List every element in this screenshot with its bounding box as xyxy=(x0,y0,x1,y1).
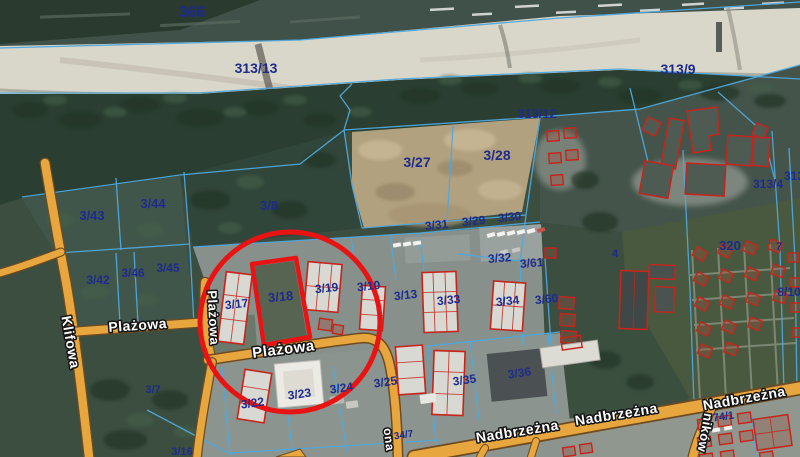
parcel-label: 3/32 xyxy=(487,250,512,266)
parcel-label: 320 xyxy=(719,238,741,253)
parcel-label: 4 xyxy=(612,248,619,260)
parcel-label: 366 xyxy=(179,4,206,21)
parcel-label: 3/44 xyxy=(140,196,166,211)
map-canvas[interactable]: PlażowaPlażowaPlażowaKlifowaNadbrzeżnaNa… xyxy=(0,0,800,457)
parcel-label: 3/13 xyxy=(393,287,418,303)
parcel-label: 3/8 xyxy=(260,198,278,213)
map-viewport[interactable]: PlażowaPlażowaPlażowaKlifowaNadbrzeżnaNa… xyxy=(0,0,800,457)
building xyxy=(655,287,675,313)
street-label: Plażowa xyxy=(205,290,223,346)
parcel-label: 313 xyxy=(784,169,800,183)
parcel-label: 3/45 xyxy=(156,261,180,275)
parcel-label: 3/31 xyxy=(424,217,449,233)
parcel-label: 3/34 xyxy=(495,293,520,309)
parcel-label: 8/10 xyxy=(777,285,800,299)
parcel-label: 3/17 xyxy=(224,296,249,312)
parcel-label: 3/60 xyxy=(534,291,559,307)
parcel-label: 3/28 xyxy=(483,147,510,163)
building-cabin xyxy=(318,318,332,331)
parcel-label: 313/12 xyxy=(517,106,557,121)
parcel-label: 3/42 xyxy=(86,273,110,287)
building xyxy=(649,265,675,280)
parcel-label: 3/18 xyxy=(267,288,294,305)
parcel-label: 3/16 xyxy=(171,446,192,457)
building-small xyxy=(545,248,556,258)
road-stub-b xyxy=(531,441,536,457)
parcel-label: 313/13 xyxy=(235,60,278,76)
parcel-label: 3/19 xyxy=(314,280,339,296)
parcel-label: 313/4 xyxy=(753,177,783,191)
parcel-label: 3/29 xyxy=(461,213,486,229)
parcel-label: 3/33 xyxy=(436,292,461,308)
parcel-label: 3/43 xyxy=(79,208,104,223)
parcel-label: 7 xyxy=(776,241,782,253)
parcel-label: 3/27 xyxy=(403,154,430,170)
building-3-25 xyxy=(395,345,425,395)
parcel-label: 3/7 xyxy=(145,384,160,396)
building-cabin xyxy=(332,324,343,334)
parcel-label: 3/30 xyxy=(497,209,522,225)
road-stub-a xyxy=(480,448,485,457)
parcel-label: 313/9 xyxy=(660,61,695,77)
parcel-label: 3/46 xyxy=(121,266,145,280)
building-dark-hall xyxy=(619,271,649,330)
parcel-label: 3/61 xyxy=(519,255,544,271)
parcel-label: 3/10 xyxy=(356,278,381,294)
